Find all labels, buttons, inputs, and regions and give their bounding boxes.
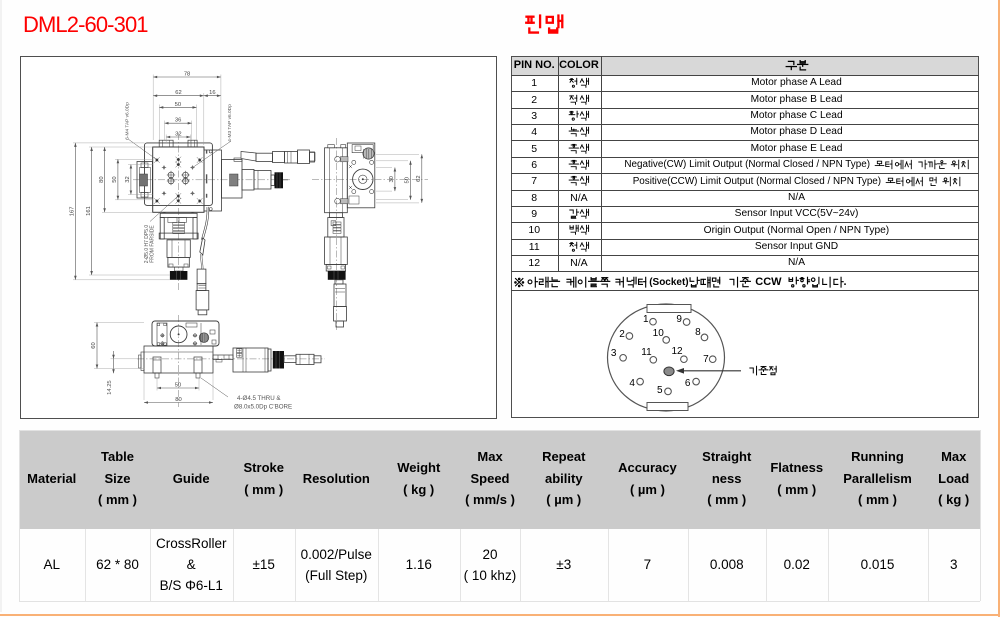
- svg-text:FROM FARSIDE: FROM FARSIDE: [150, 225, 156, 263]
- svg-text:50: 50: [405, 177, 411, 183]
- svg-text:62: 62: [416, 175, 422, 181]
- svg-text:161: 161: [86, 206, 92, 216]
- svg-text:16: 16: [209, 90, 215, 96]
- svg-text:36: 36: [175, 118, 181, 124]
- svg-text:62: 62: [175, 90, 181, 96]
- svg-text:80: 80: [99, 176, 105, 182]
- svg-text:Ø8.0x5.0Dp C’BORE: Ø8.0x5.0Dp C’BORE: [234, 404, 292, 411]
- svg-text:6-M4 TAP v6.0Dp: 6-M4 TAP v6.0Dp: [124, 102, 130, 140]
- svg-text:32: 32: [125, 176, 131, 182]
- svg-text:50: 50: [112, 176, 118, 182]
- svg-text:167: 167: [70, 207, 76, 217]
- svg-text:14.25: 14.25: [107, 380, 113, 395]
- svg-text:4-M3 TAP v6.0Dp: 4-M3 TAP v6.0Dp: [227, 104, 233, 142]
- svg-text:78: 78: [184, 72, 190, 78]
- svg-text:4-Ø4.5 THRU &: 4-Ø4.5 THRU &: [237, 395, 281, 402]
- svg-text:50: 50: [175, 102, 181, 108]
- svg-text:30: 30: [389, 176, 395, 182]
- svg-text:80: 80: [175, 397, 181, 403]
- svg-text:32: 32: [175, 132, 181, 138]
- svg-text:50: 50: [175, 383, 181, 389]
- svg-text:60: 60: [91, 342, 97, 348]
